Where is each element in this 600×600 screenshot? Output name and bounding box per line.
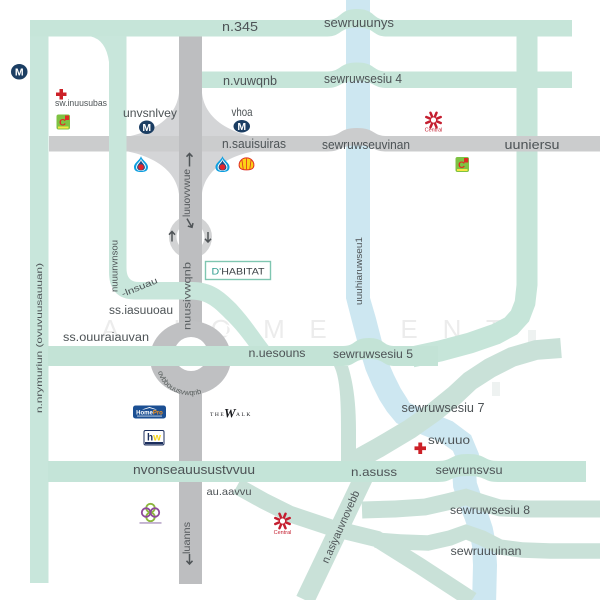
svg-text:n.nrymuriun (ovuvuusauuan): n.nrymuriun (ovuvuusauuan)	[34, 263, 44, 413]
svg-text:C: C	[458, 160, 465, 171]
svg-text:n.345: n.345	[222, 19, 258, 34]
svg-text:sewruwseuvinan: sewruwseuvinan	[322, 138, 410, 152]
svg-text:ss.iasuuoau: ss.iasuuoau	[109, 305, 173, 317]
svg-text:E: E	[400, 314, 417, 344]
svg-text:THE: THE	[210, 412, 225, 418]
svg-text:M: M	[142, 122, 151, 134]
svg-text:nuusivwqnb: nuusivwqnb	[183, 261, 194, 330]
svg-text:sewruuuinan: sewruuuinan	[451, 544, 522, 558]
svg-text:ALK: ALK	[236, 412, 252, 418]
svg-text:luanns: luanns	[182, 522, 193, 554]
svg-text:sw.uuo: sw.uuo	[428, 435, 470, 447]
svg-text:uuniersu: uuniersu	[505, 138, 560, 152]
svg-text:E: E	[309, 314, 326, 344]
svg-text:n.vuwqnb: n.vuwqnb	[223, 74, 277, 88]
svg-text:n.sauisuiras: n.sauisuiras	[222, 137, 286, 151]
svg-text:nuuunvnsou: nuuunvnsou	[110, 240, 120, 292]
svg-text:n.asuss: n.asuss	[351, 465, 397, 479]
svg-text:sewruwsesiu 5: sewruwsesiu 5	[333, 347, 413, 361]
svg-text:nvonseauusustvvuu: nvonseauusustvvuu	[133, 463, 255, 477]
svg-text:n.uesouns: n.uesouns	[249, 346, 306, 360]
svg-text:M: M	[15, 67, 24, 79]
svg-text:sewruuunys: sewruuunys	[324, 16, 394, 30]
svg-text:sewruwsesiu 4: sewruwsesiu 4	[324, 72, 402, 86]
svg-text:sewrunsvsu: sewrunsvsu	[436, 463, 503, 477]
svg-text:Central: Central	[425, 128, 443, 134]
svg-text:C: C	[59, 118, 66, 129]
svg-text:ss.ouuraiauvan: ss.ouuraiauvan	[63, 332, 149, 344]
svg-text:luuovvwue: luuovvwue	[182, 169, 193, 217]
svg-text:hw: hw	[147, 433, 161, 444]
svg-text:sewruwsesiu 8: sewruwsesiu 8	[450, 503, 530, 517]
svg-text:uuuhiaruwseu1: uuuhiaruwseu1	[354, 237, 365, 305]
svg-text:Central: Central	[274, 530, 292, 536]
svg-text:au.aavvu: au.aavvu	[207, 486, 252, 498]
svg-text:sewruwsesiu 7: sewruwsesiu 7	[402, 401, 485, 415]
svg-text:M: M	[237, 121, 246, 133]
svg-text:D'HABITAT: D'HABITAT	[212, 267, 265, 278]
svg-text:unvsnlvey: unvsnlvey	[123, 106, 177, 120]
svg-text:vhoa: vhoa	[232, 105, 253, 119]
svg-text:M: M	[263, 314, 285, 344]
